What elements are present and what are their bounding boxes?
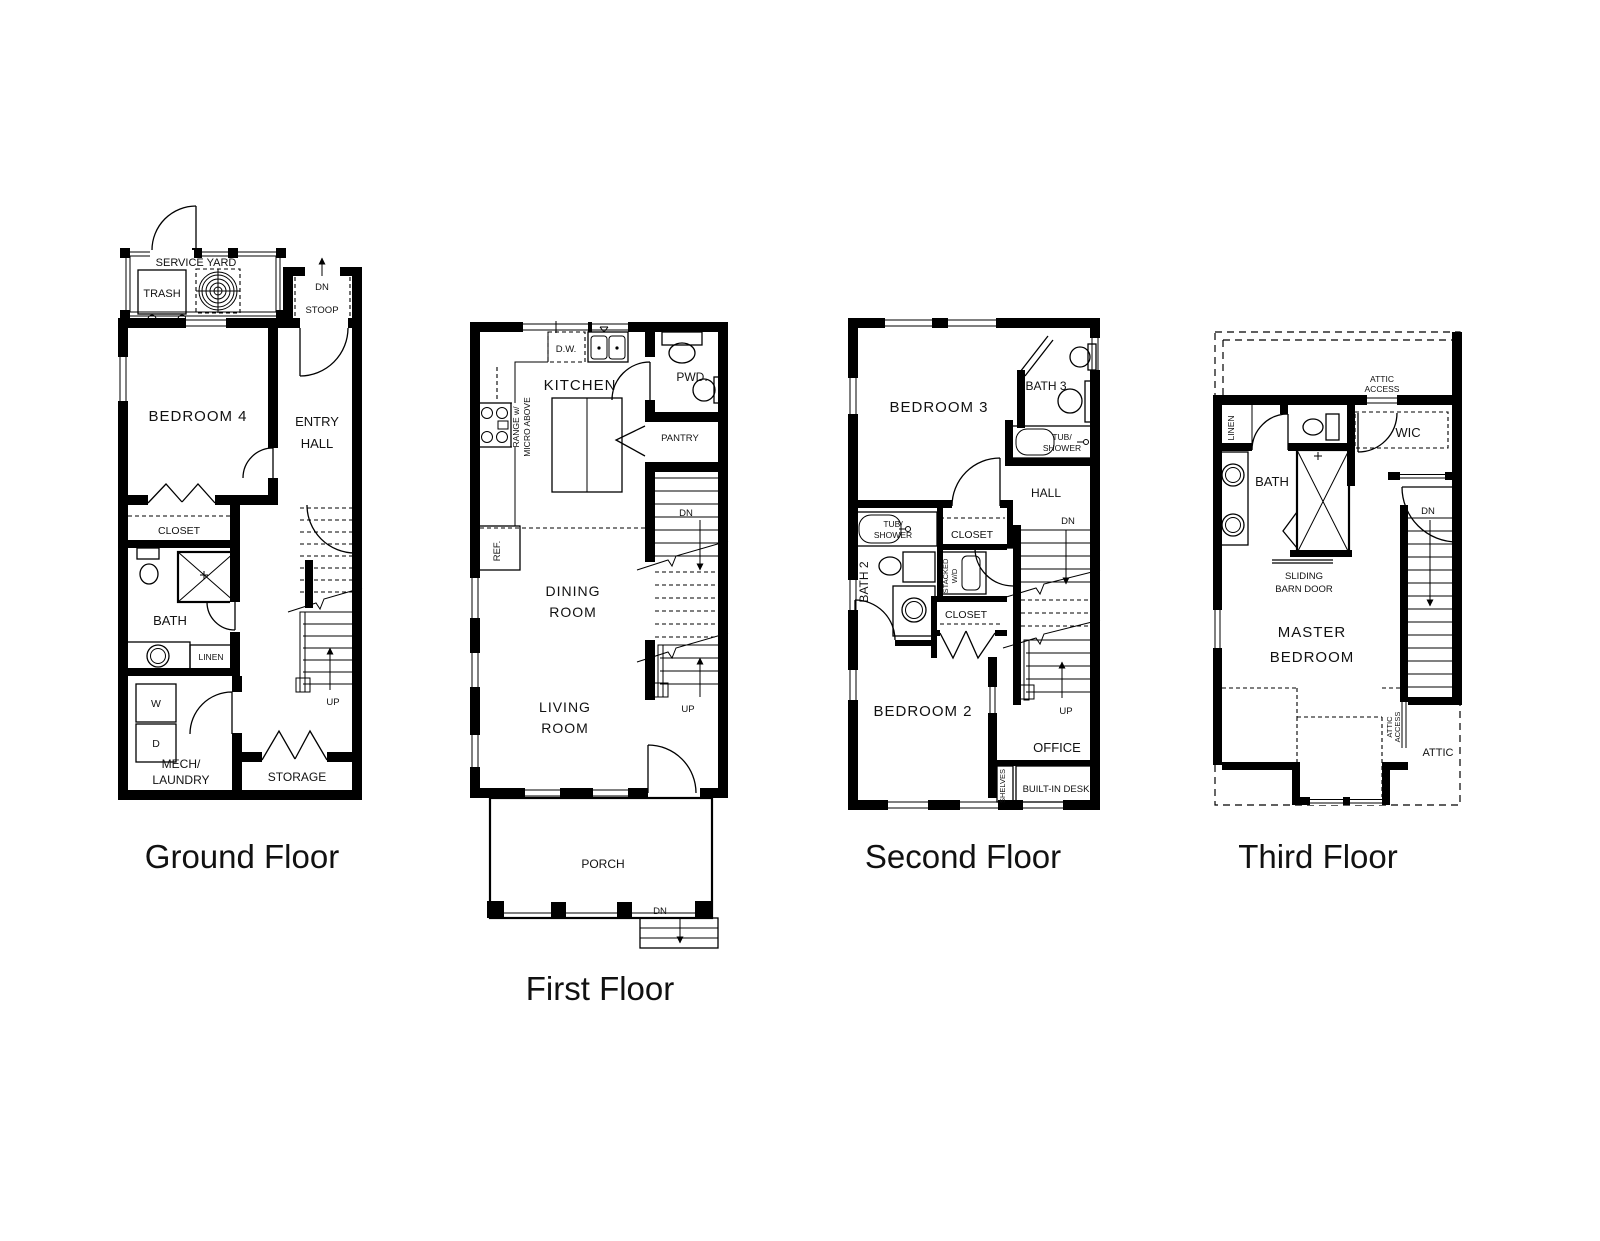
pantry-label: PANTRY (661, 433, 699, 444)
third-floor-plan: ATTIC ACCESS LINEN WIC BATH (1213, 332, 1462, 875)
third-stairs: DN (1408, 506, 1452, 687)
second-floor-plan: BATH 3 TUB/ SHOWER BEDROOM 3 HALL TUB/ S… (847, 317, 1101, 875)
range-label-1: RANGE w/ (511, 406, 521, 448)
porch-dn-label: DN (653, 906, 667, 917)
wic-label: WIC (1395, 425, 1420, 440)
wic: WIC (1355, 412, 1448, 452)
shelves-label: SHELVES (998, 769, 1007, 803)
storage-label: STORAGE (268, 770, 326, 784)
floor-plan-image: SERVICE YARD TRASH DN STOOP (0, 0, 1600, 1236)
linen-label: LINEN (198, 652, 223, 662)
first-up-label: UP (681, 704, 694, 715)
dryer-label: D (152, 738, 160, 750)
attic-access-side: ATTIC ACCESS (1385, 702, 1408, 748)
first-outer-wall (475, 327, 723, 793)
bath2-tub-label-1: TUB/ (883, 519, 903, 529)
stacked-wd-label-2: W/D (950, 568, 959, 583)
attic-access-side-label-2: ACCESS (1393, 712, 1402, 743)
living-room-label-1: LIVING (539, 699, 591, 715)
stacked-wd-label-1: STACKED (941, 558, 950, 593)
first-floor-plan: D.W. RANGE w/ MICRO ABOVE REF. KITCHEN (469, 321, 728, 1007)
mech-laundry-label-1: MECH/ (162, 757, 201, 771)
range-label-2: MICRO ABOVE (522, 397, 532, 457)
floor-plan-sheet: SERVICE YARD TRASH DN STOOP (0, 0, 1600, 1236)
service-yard: SERVICE YARD TRASH (120, 206, 286, 323)
office-label: OFFICE (1033, 740, 1081, 755)
bath-label: BATH (153, 613, 187, 628)
ground-up-label: UP (326, 697, 339, 708)
second-outer-wall (853, 323, 1095, 805)
entry-hall-label-1: ENTRY (295, 414, 339, 429)
dishwasher-label: D.W. (556, 344, 577, 355)
attic-label: ATTIC (1423, 747, 1454, 759)
bath2-tub-label-2: SHOWER (874, 530, 912, 540)
third-dn-label: DN (1421, 506, 1435, 517)
attic-outline-inner (1223, 340, 1452, 395)
kitchen-label: KITCHEN (544, 377, 617, 394)
barn-door-label-1: SLIDING (1285, 571, 1323, 582)
dining-room-label-2: ROOM (549, 604, 597, 620)
closet-lower-label: CLOSET (945, 609, 988, 621)
stoop: DN STOOP (283, 258, 362, 321)
master-bedroom-label-2: BEDROOM (1270, 649, 1355, 666)
ground-floor-plan: SERVICE YARD TRASH DN STOOP (117, 206, 362, 875)
porch: PORCH DN (487, 798, 718, 948)
bedroom2-label: BEDROOM 2 (873, 703, 972, 720)
bedroom4-label: BEDROOM 4 (148, 408, 247, 425)
attic-access-top-label-2: ACCESS (1365, 384, 1400, 394)
closet-upper-label: CLOSET (951, 529, 994, 541)
pwd-label: PWD. (676, 370, 707, 384)
attic-access-top-label-1: ATTIC (1370, 374, 1394, 384)
dining-room-label-1: DINING (546, 583, 601, 599)
desk-label: BUILT-IN DESK (1023, 784, 1091, 795)
bath2-label: BATH 2 (857, 561, 871, 602)
entry-hall-label-2: HALL (301, 436, 334, 451)
trash-label: TRASH (143, 288, 180, 300)
master-bedroom-label-1: MASTER (1278, 624, 1347, 641)
first-dn-label: DN (679, 508, 693, 519)
barn-door-label-2: BARN DOOR (1275, 584, 1333, 595)
bath3-tub-label-2: SHOWER (1043, 443, 1081, 453)
bedroom3-label: BEDROOM 3 (889, 399, 988, 416)
washer-label: W (151, 698, 161, 710)
ground-floor-title: Ground Floor (145, 838, 339, 875)
ref-label: REF. (492, 541, 503, 562)
living-room-label-2: ROOM (541, 720, 589, 736)
third-linen-label: LINEN (1226, 415, 1236, 440)
porch-label: PORCH (581, 857, 624, 871)
stoop-label: STOOP (305, 305, 338, 316)
stoop-dn-label: DN (315, 282, 329, 293)
first-floor-title: First Floor (526, 970, 675, 1007)
third-bath-label: BATH (1255, 474, 1289, 489)
second-floor-title: Second Floor (865, 838, 1061, 875)
mech-laundry-label-2: LAUNDRY (152, 773, 209, 787)
third-bath: BATH SLIDING BARN DOOR (1218, 450, 1349, 595)
third-floor-title: Third Floor (1238, 838, 1398, 875)
bath3-label: BATH 3 (1025, 379, 1066, 393)
hall-label: HALL (1031, 486, 1061, 500)
closet-label: CLOSET (158, 525, 201, 537)
third-walls (1213, 332, 1462, 805)
ceiling-break-lines (1222, 688, 1400, 797)
service-yard-label: SERVICE YARD (156, 257, 237, 269)
bath3-tub-label-1: TUB/ (1052, 432, 1072, 442)
ac-condenser-icon (196, 269, 240, 313)
second-dn-label: DN (1061, 516, 1075, 527)
second-up-label: UP (1059, 706, 1072, 717)
